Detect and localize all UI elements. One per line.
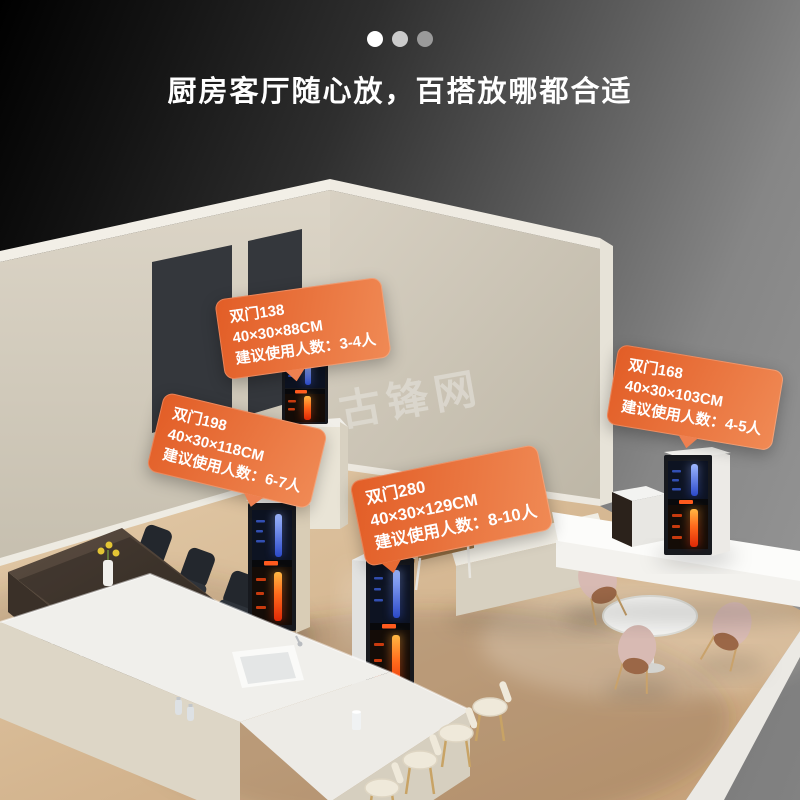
storage-cube [612, 486, 666, 547]
carousel-dots [367, 31, 433, 47]
carousel-dot-1[interactable] [367, 31, 383, 47]
carousel-dot-3[interactable] [417, 31, 433, 47]
drinking-glass [352, 710, 361, 730]
product-slide: 古锋网 厨房客厅随心放，百搭放哪都合适 双门138 40×30×88CM 建议使… [0, 0, 800, 800]
carousel-dot-2[interactable] [392, 31, 408, 47]
page-title: 厨房客厅随心放，百搭放哪都合适 [0, 68, 800, 110]
wine-cabinet-168 [656, 447, 736, 564]
